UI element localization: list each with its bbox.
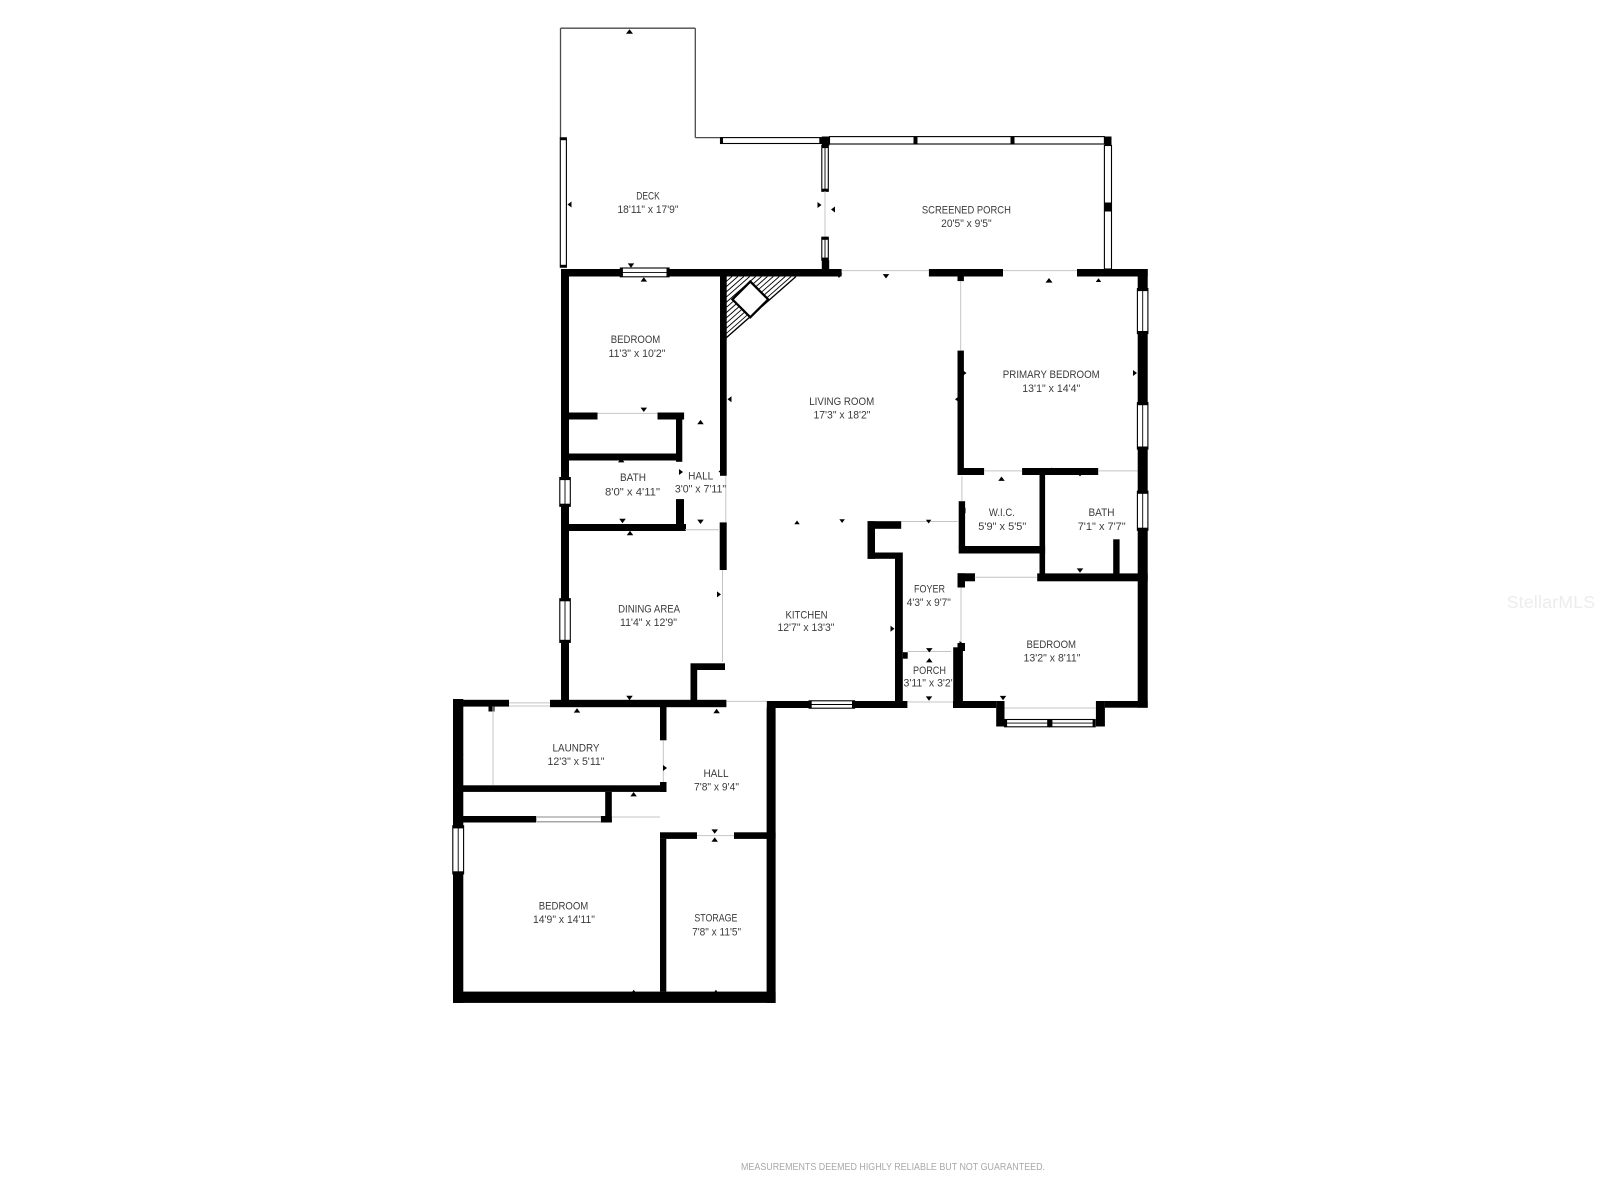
svg-text:DECK: DECK xyxy=(636,190,660,202)
svg-text:HALL: HALL xyxy=(688,470,713,482)
svg-text:PRIMARY BEDROOM: PRIMARY BEDROOM xyxy=(1003,369,1100,381)
svg-text:7'8" x 11'5": 7'8" x 11'5" xyxy=(692,926,741,938)
svg-text:18'11" x 17'9": 18'11" x 17'9" xyxy=(618,204,679,216)
svg-text:BATH: BATH xyxy=(1089,507,1115,519)
svg-text:12'7" x 13'3": 12'7" x 13'3" xyxy=(778,622,835,634)
svg-text:5'9" x 5'5": 5'9" x 5'5" xyxy=(978,521,1026,533)
svg-text:20'5" x 9'5": 20'5" x 9'5" xyxy=(941,218,992,230)
svg-text:FOYER: FOYER xyxy=(914,584,945,596)
svg-text:BEDROOM: BEDROOM xyxy=(611,334,661,346)
svg-text:7'8" x 9'4": 7'8" x 9'4" xyxy=(694,781,739,793)
svg-text:LAUNDRY: LAUNDRY xyxy=(553,743,601,755)
svg-text:3'0" x 7'11": 3'0" x 7'11" xyxy=(675,483,726,495)
svg-text:LIVING ROOM: LIVING ROOM xyxy=(809,396,874,408)
svg-text:MEASUREMENTS DEEMED HIGHLY REL: MEASUREMENTS DEEMED HIGHLY RELIABLE BUT … xyxy=(741,1161,1045,1173)
svg-text:12'3" x 5'11": 12'3" x 5'11" xyxy=(548,756,605,768)
svg-text:11'3" x 10'2": 11'3" x 10'2" xyxy=(609,348,666,360)
svg-text:W.I.C.: W.I.C. xyxy=(989,507,1015,519)
svg-text:DINING AREA: DINING AREA xyxy=(618,603,681,615)
svg-text:17'3" x 18'2": 17'3" x 18'2" xyxy=(814,409,871,421)
svg-text:13'1" x 14'4": 13'1" x 14'4" xyxy=(1022,383,1080,395)
svg-text:KITCHEN: KITCHEN xyxy=(786,609,828,621)
svg-text:14'9" x 14'11": 14'9" x 14'11" xyxy=(533,914,595,926)
svg-text:StellarMLS: StellarMLS xyxy=(1507,592,1596,612)
svg-text:8'0" x 4'11": 8'0" x 4'11" xyxy=(605,486,660,498)
svg-text:7'1" x 7'7": 7'1" x 7'7" xyxy=(1078,521,1126,533)
svg-text:3'11" x 3'2": 3'11" x 3'2" xyxy=(904,678,955,690)
svg-text:PORCH: PORCH xyxy=(913,665,946,677)
svg-text:STORAGE: STORAGE xyxy=(694,912,737,924)
svg-text:13'2" x 8'11": 13'2" x 8'11" xyxy=(1024,652,1081,664)
svg-text:HALL: HALL xyxy=(703,768,728,780)
svg-text:BEDROOM: BEDROOM xyxy=(539,901,589,913)
svg-text:SCREENED PORCH: SCREENED PORCH xyxy=(922,204,1011,216)
svg-text:11'4" x 12'9": 11'4" x 12'9" xyxy=(620,617,677,629)
svg-text:BEDROOM: BEDROOM xyxy=(1027,639,1077,651)
svg-text:BATH: BATH xyxy=(620,472,646,484)
svg-text:4'3" x 9'7": 4'3" x 9'7" xyxy=(907,597,951,609)
